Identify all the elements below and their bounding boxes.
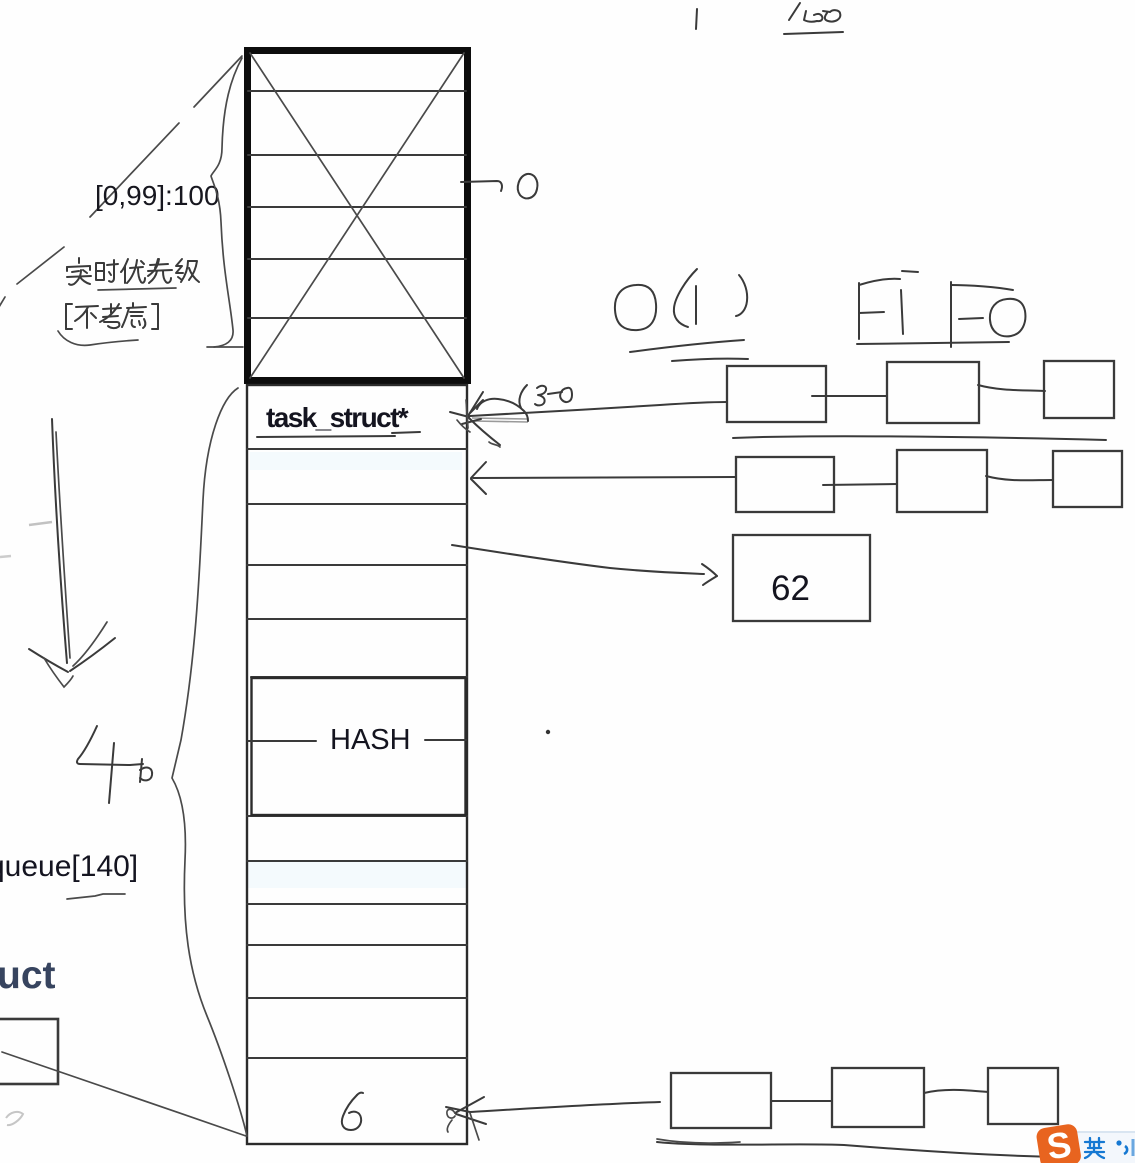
svg-text:HASH: HASH <box>330 724 411 756</box>
svg-text:task_struct*: task_struct* <box>266 402 409 433</box>
svg-text:[0,99]:100: [0,99]:100 <box>95 180 220 211</box>
svg-text:uct: uct <box>0 954 56 997</box>
svg-text:62: 62 <box>771 569 810 608</box>
svg-text:queue[140]: queue[140] <box>0 850 138 883</box>
